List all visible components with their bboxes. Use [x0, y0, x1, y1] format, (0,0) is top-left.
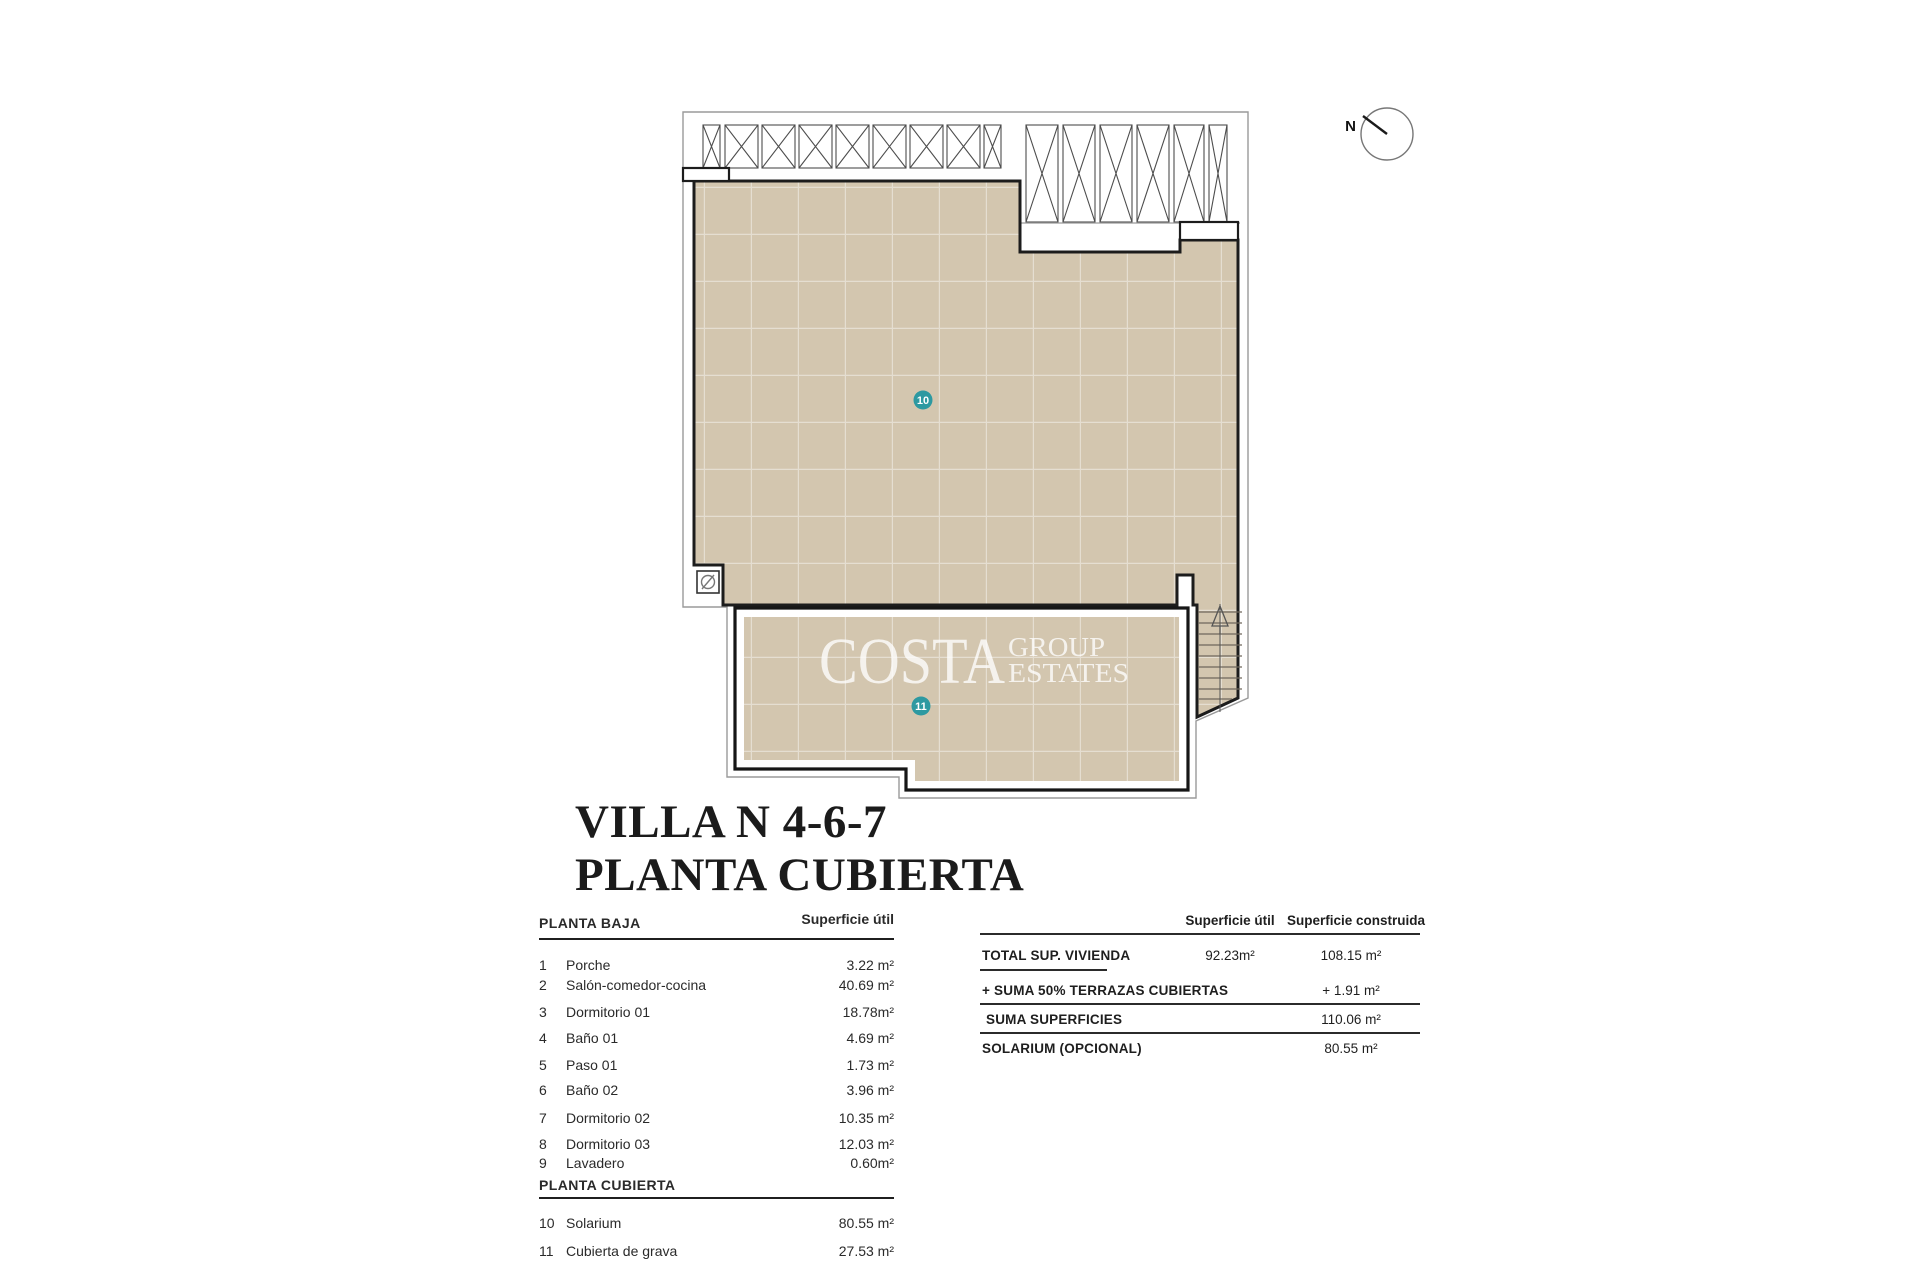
- superficie-construida-value: 110.06 m²: [1286, 1012, 1416, 1027]
- table-row: 6Baño 023.96 m²: [539, 1082, 894, 1099]
- watermark-costa: COSTA: [819, 625, 1005, 698]
- table-row: 11Cubierta de grava27.53 m²: [539, 1243, 894, 1260]
- row-number: 5: [539, 1057, 566, 1074]
- room-name: Dormitorio 03: [566, 1136, 839, 1153]
- row-number: 6: [539, 1082, 566, 1099]
- room-area: 12.03 m²: [839, 1136, 894, 1153]
- room-marker-11: 11: [912, 697, 931, 716]
- room-name: Dormitorio 01: [566, 1004, 843, 1021]
- row-label: SOLARIUM (OPCIONAL): [982, 1041, 1142, 1056]
- room-name: Cubierta de grava: [566, 1243, 839, 1260]
- room-area: 4.69 m²: [847, 1030, 894, 1047]
- column-header-superficie-util: Superficie útil: [801, 911, 894, 927]
- room-name: Lavadero: [566, 1155, 850, 1172]
- room-area: 3.96 m²: [847, 1082, 894, 1099]
- room-marker-11-label: 11: [915, 701, 927, 713]
- pergola-panels-left: [703, 125, 1001, 168]
- table-rule: [980, 1032, 1420, 1034]
- table-rule: [539, 1197, 894, 1199]
- table-row: 9Lavadero0.60m²: [539, 1155, 894, 1172]
- room-name: Baño 02: [566, 1082, 847, 1099]
- room-area: 80.55 m²: [839, 1215, 894, 1232]
- row-number: 7: [539, 1110, 566, 1127]
- row-number: 11: [539, 1243, 566, 1260]
- room-marker-10: 10: [914, 391, 933, 410]
- table-row: 1Porche3.22 m²: [539, 957, 894, 974]
- column-header-superficie-construida: Superficie construida: [1281, 913, 1431, 928]
- room-area: 3.22 m²: [847, 957, 894, 974]
- summary-table: Superficie útil Superficie construida TO…: [980, 905, 1420, 1070]
- plan-title: VILLA N 4-6-7 PLANTA CUBIERTA: [575, 796, 1024, 902]
- room-area: 1.73 m²: [847, 1057, 894, 1074]
- plan-title-line2: PLANTA CUBIERTA: [575, 849, 1024, 902]
- row-number: 2: [539, 977, 566, 994]
- watermark: COSTA GROUP ESTATES: [819, 625, 1129, 698]
- table-row: 3Dormitorio 0118.78m²: [539, 1004, 894, 1021]
- room-name: Baño 01: [566, 1030, 847, 1047]
- row-number: 8: [539, 1136, 566, 1153]
- table-row: 10Solarium80.55 m²: [539, 1215, 894, 1232]
- room-area: 40.69 m²: [839, 977, 894, 994]
- superficie-construida-value: 108.15 m²: [1286, 948, 1416, 963]
- room-name: Salón-comedor-cocina: [566, 977, 839, 994]
- room-area: 27.53 m²: [839, 1243, 894, 1260]
- table-rule: [980, 969, 1107, 971]
- row-label: + SUMA 50% TERRAZAS CUBIERTAS: [982, 983, 1228, 998]
- areas-table: PLANTA BAJA Superficie útil 1Porche3.22 …: [539, 905, 894, 1277]
- drain-icon: [697, 571, 719, 593]
- table-row: 2Salón-comedor-cocina40.69 m²: [539, 977, 894, 994]
- row-number: 4: [539, 1030, 566, 1047]
- room-area: 18.78m²: [843, 1004, 894, 1021]
- north-compass-icon: N: [1345, 108, 1413, 160]
- table-row: 4Baño 014.69 m²: [539, 1030, 894, 1047]
- table-rule: [980, 933, 1420, 935]
- table-row: 8Dormitorio 0312.03 m²: [539, 1136, 894, 1153]
- room-name: Dormitorio 02: [566, 1110, 839, 1127]
- table-rule: [539, 938, 894, 940]
- watermark-estates: ESTATES: [1008, 658, 1129, 688]
- north-label: N: [1345, 118, 1356, 135]
- section-header-planta-cubierta: PLANTA CUBIERTA: [539, 1177, 894, 1193]
- floor-plan: COSTA GROUP ESTATES 10 11 N: [660, 92, 1440, 812]
- wall-notch-top-right: [1180, 222, 1238, 240]
- room-name: Paso 01: [566, 1057, 847, 1074]
- room-marker-10-label: 10: [917, 395, 929, 407]
- table-rule: [980, 1003, 1420, 1005]
- row-number: 1: [539, 957, 566, 974]
- row-number: 9: [539, 1155, 566, 1172]
- plan-title-line1: VILLA N 4-6-7: [575, 796, 1024, 849]
- table-row: 7Dormitorio 0210.35 m²: [539, 1110, 894, 1127]
- room-area: 10.35 m²: [839, 1110, 894, 1127]
- superficie-construida-value: 80.55 m²: [1286, 1041, 1416, 1056]
- room-name: Porche: [566, 957, 847, 974]
- superficie-util-value: 92.23m²: [1165, 948, 1295, 963]
- row-number: 10: [539, 1215, 566, 1232]
- row-label: TOTAL SUP. VIVIENDA: [982, 948, 1130, 963]
- pergola-panels-right: [1026, 125, 1227, 222]
- superficie-construida-value: + 1.91 m²: [1286, 983, 1416, 998]
- room-area: 0.60m²: [850, 1155, 894, 1172]
- row-label: SUMA SUPERFICIES: [986, 1012, 1122, 1027]
- row-number: 3: [539, 1004, 566, 1021]
- table-row: 5Paso 011.73 m²: [539, 1057, 894, 1074]
- room-name: Solarium: [566, 1215, 839, 1232]
- wall-step-top-left: [683, 168, 729, 181]
